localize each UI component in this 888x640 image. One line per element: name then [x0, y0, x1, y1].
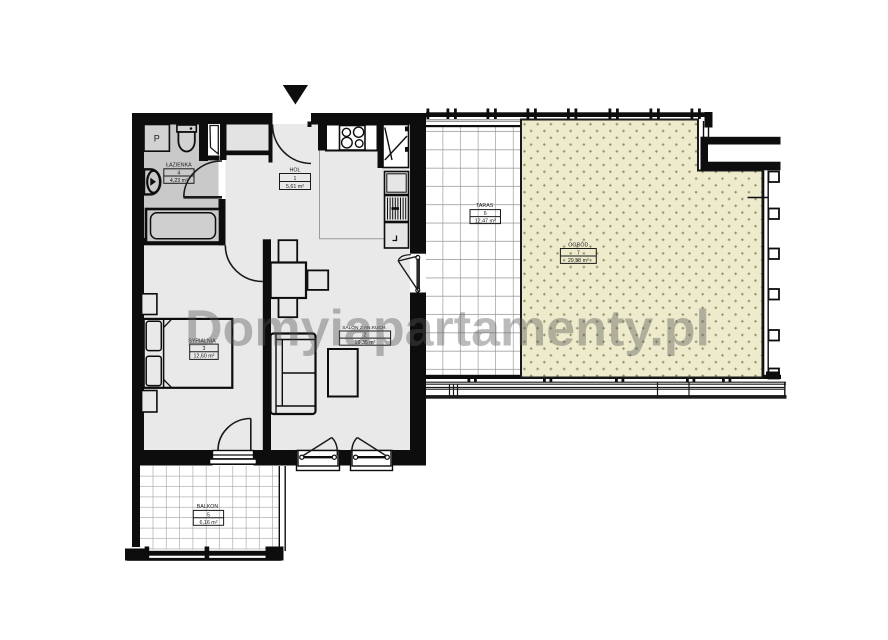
- svg-text:29,58 m²: 29,58 m²: [568, 258, 589, 264]
- svg-text:OGRÓD: OGRÓD: [568, 241, 588, 248]
- svg-text:7: 7: [577, 251, 580, 257]
- svg-text:12,47 m²: 12,47 m²: [475, 218, 496, 224]
- svg-text:HOL: HOL: [290, 168, 301, 174]
- svg-text:4: 4: [177, 171, 180, 177]
- svg-text:4,23 m²: 4,23 m²: [170, 178, 188, 184]
- svg-text:6,16 m²: 6,16 m²: [200, 520, 218, 526]
- svg-text:BALKON: BALKON: [197, 504, 219, 510]
- svg-text:Domyiapartamenty.pl: Domyiapartamenty.pl: [185, 300, 710, 357]
- svg-text:P: P: [154, 134, 160, 144]
- svg-text:ŁAZIENKA: ŁAZIENKA: [166, 162, 192, 168]
- svg-text:6: 6: [484, 211, 487, 217]
- svg-text:5,61 m²: 5,61 m²: [286, 184, 304, 190]
- svg-text:5: 5: [207, 512, 210, 518]
- svg-text:TARAS: TARAS: [476, 203, 494, 209]
- svg-text:1: 1: [294, 176, 297, 182]
